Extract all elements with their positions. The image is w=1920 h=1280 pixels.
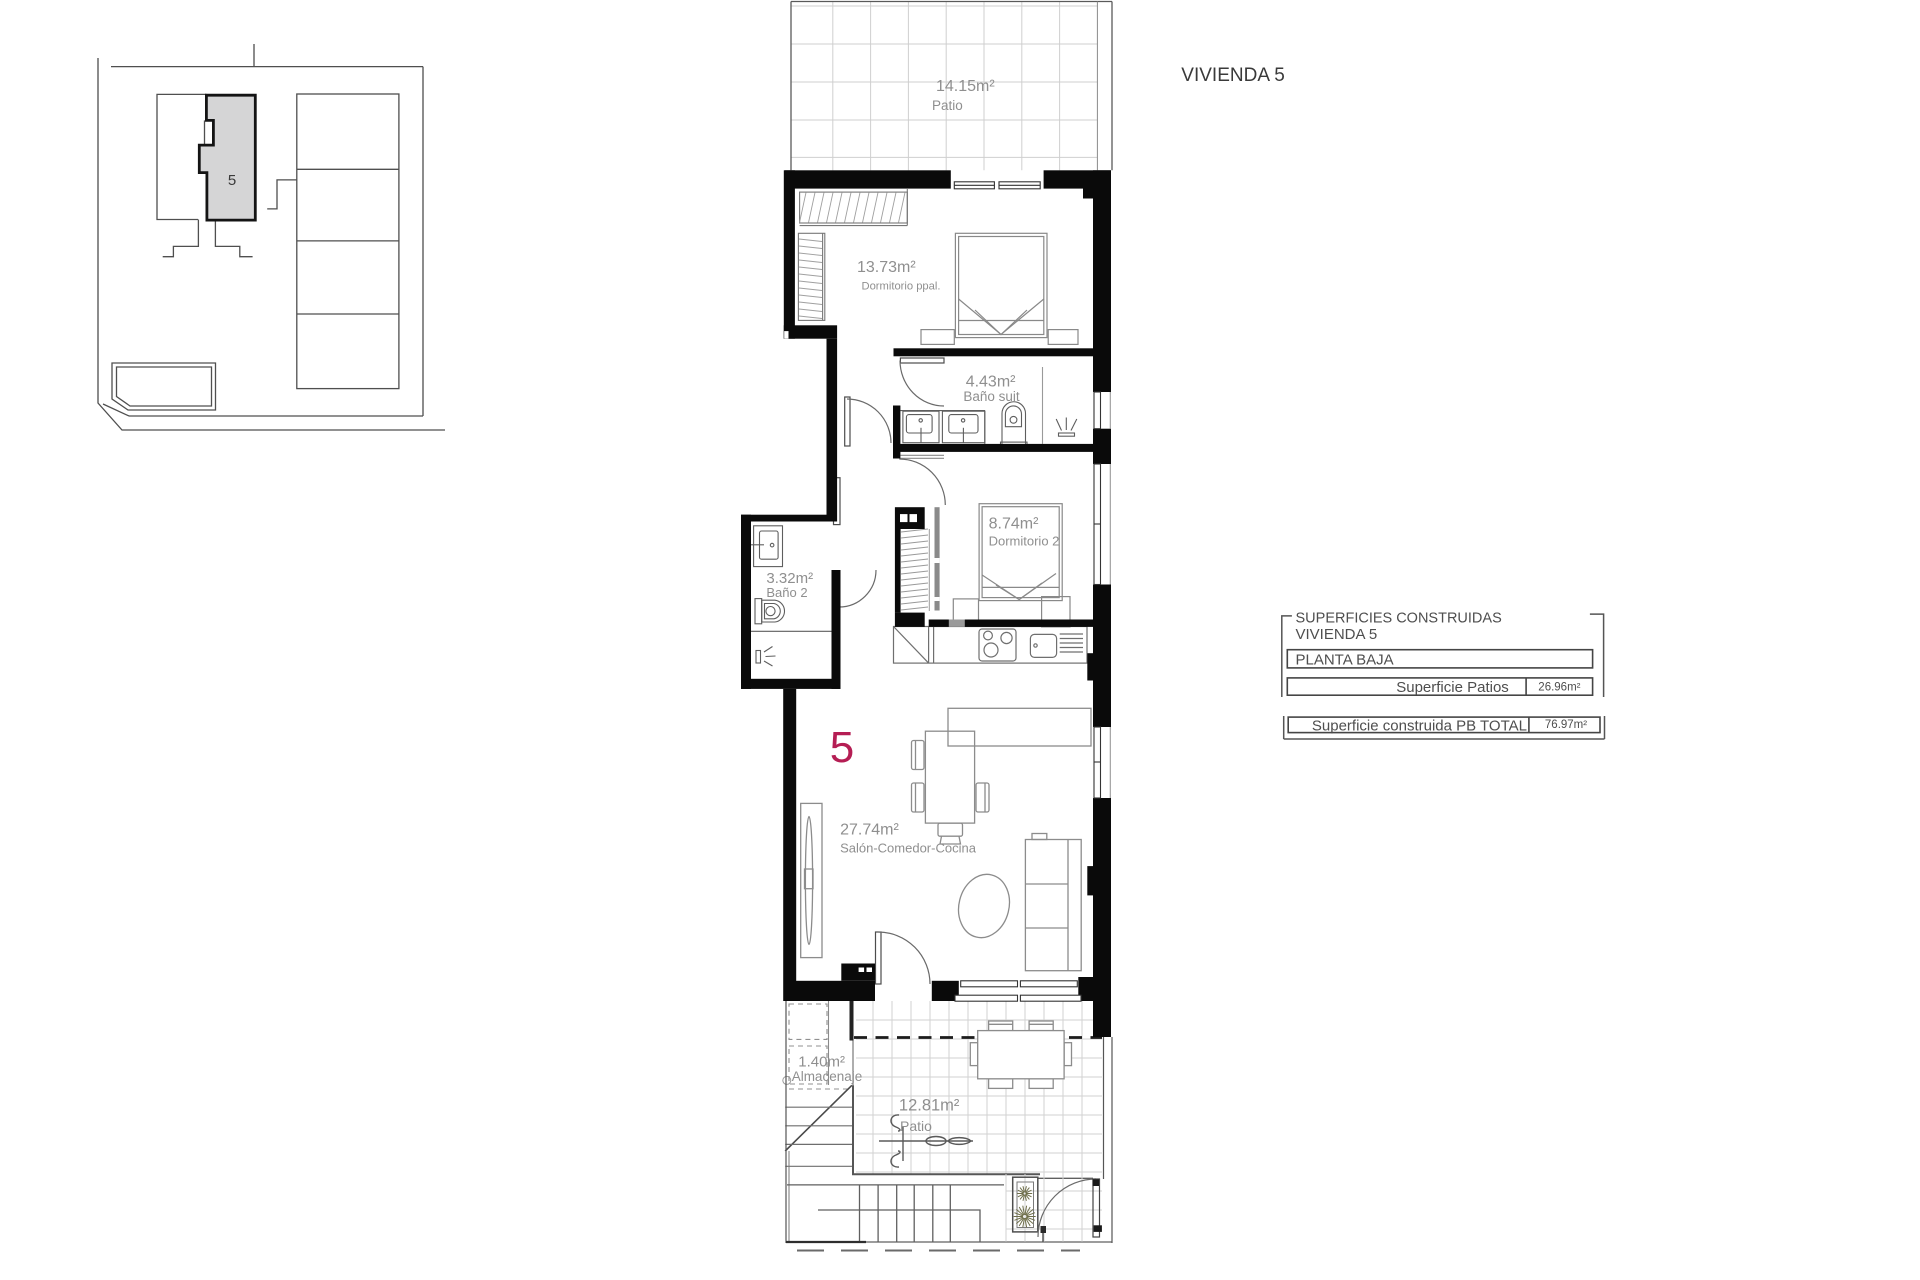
svg-text:5: 5 (228, 172, 236, 189)
svg-text:VIVIENDA 5: VIVIENDA 5 (1296, 626, 1378, 643)
svg-text:27.74m²: 27.74m² (840, 822, 899, 839)
svg-text:76.97m²: 76.97m² (1545, 719, 1587, 731)
svg-text:Dormitorio 2: Dormitorio 2 (989, 534, 1060, 549)
svg-text:4.43m²: 4.43m² (966, 373, 1016, 390)
svg-text:SUPERFICIES CONSTRUIDAS: SUPERFICIES CONSTRUIDAS (1296, 611, 1502, 627)
svg-text:14.15m²: 14.15m² (936, 78, 995, 95)
svg-text:12.81m²: 12.81m² (899, 1097, 960, 1115)
svg-text:VIVIENDA 5: VIVIENDA 5 (1181, 65, 1285, 86)
svg-text:5: 5 (830, 723, 854, 772)
svg-text:Superficie construida PB TOTAL: Superficie construida PB TOTAL (1312, 717, 1527, 734)
svg-text:26.96m²: 26.96m² (1538, 682, 1580, 694)
svg-text:PLANTA BAJA: PLANTA BAJA (1296, 652, 1394, 669)
svg-text:Baño suit: Baño suit (963, 389, 1020, 404)
svg-text:Salón-Comedor-Cocina: Salón-Comedor-Cocina (840, 841, 977, 856)
svg-text:Dormitorio ppal.: Dormitorio ppal. (862, 281, 941, 293)
svg-text:8.74m²: 8.74m² (989, 515, 1039, 532)
svg-text:Baño 2: Baño 2 (766, 585, 807, 600)
svg-text:Almacenaje: Almacenaje (792, 1069, 863, 1084)
svg-text:13.73m²: 13.73m² (857, 259, 916, 276)
svg-text:Patio: Patio (900, 1118, 932, 1134)
svg-text:Patio: Patio (932, 98, 963, 113)
svg-text:Superficie Patios: Superficie Patios (1396, 679, 1509, 696)
